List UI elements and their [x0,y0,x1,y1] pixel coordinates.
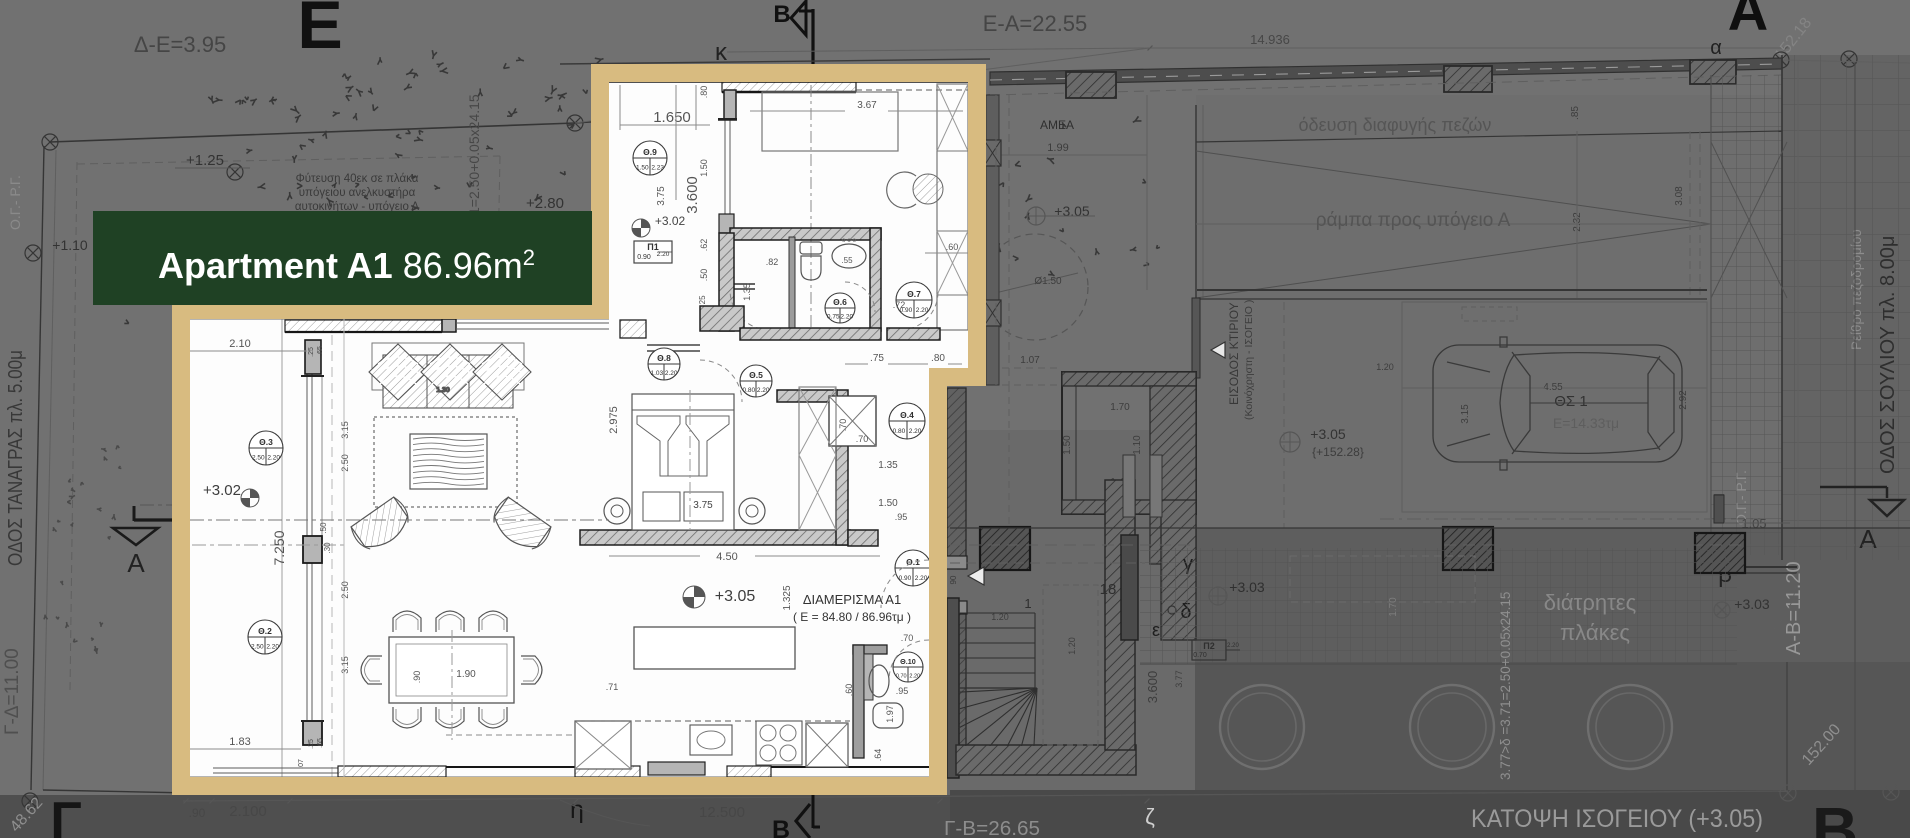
svg-text:90: 90 [949,575,958,584]
svg-text:2.20: 2.20 [267,454,280,461]
svg-text:.07: .07 [298,759,305,769]
svg-text:2.50: 2.50 [340,581,350,599]
svg-text:1.50: 1.50 [636,164,649,171]
svg-text:.60: .60 [844,684,854,697]
svg-text:2.23: 2.23 [651,164,664,171]
svg-text:1.50: 1.50 [1062,435,1073,455]
svg-text:Π2: Π2 [1203,641,1215,651]
svg-text:Δ-Ε=3.95: Δ-Ε=3.95 [134,32,226,57]
svg-text:ΔΙΑΜΕΡΙΣΜΑ Α1: ΔΙΑΜΕΡΙΣΜΑ Α1 [803,592,901,607]
svg-text:3.600: 3.600 [1145,671,1160,704]
svg-text:ΚΑΤΟΨΗ ΙΣΟΓΕΙΟΥ (+3.05): ΚΑΤΟΨΗ ΙΣΟΓΕΙΟΥ (+3.05) [1471,805,1763,833]
svg-text:.71: .71 [606,682,619,692]
svg-text:2.20: 2.20 [915,575,928,582]
svg-text:2.20: 2.20 [909,428,922,435]
svg-text:α: α [1710,37,1722,59]
svg-text:7.250: 7.250 [271,530,287,565]
svg-text:1.70: 1.70 [1110,402,1130,413]
svg-text:Ο.Γ.- Ρ.Γ.: Ο.Γ.- Ρ.Γ. [7,175,23,230]
svg-text:ΟΔΟΣ ΤΑΝΑΓΡΑΣ πλ. 5.00μ: ΟΔΟΣ ΤΑΝΑΓΡΑΣ πλ. 5.00μ [5,350,27,566]
svg-text:Ε-Α=22.55: Ε-Α=22.55 [983,11,1088,36]
svg-text:+3.02: +3.02 [203,482,241,499]
svg-text:1.35: 1.35 [878,460,898,471]
svg-text:1.97: 1.97 [885,705,895,723]
svg-text:18: 18 [1100,581,1117,598]
svg-text:.64: .64 [873,749,883,762]
svg-text:1.90: 1.90 [456,669,476,680]
svg-text:1.07: 1.07 [1020,355,1040,366]
svg-text:1: 1 [1024,596,1031,611]
svg-text:3.77>δ =3.71=2.50+0.05x24.15: 3.77>δ =3.71=2.50+0.05x24.15 [1498,592,1513,780]
svg-text:2.100: 2.100 [229,803,267,820]
svg-text:Θ.10: Θ.10 [900,657,916,666]
svg-text:+3.05: +3.05 [1310,426,1346,442]
svg-text:1.50: 1.50 [699,159,709,177]
svg-text:+3.02: +3.02 [655,214,686,228]
svg-text:o-o-o: o-o-o [842,238,857,244]
svg-text:Β: Β [773,1,790,28]
svg-text:.25: .25 [308,739,315,749]
svg-text:.65: .65 [317,738,324,748]
svg-text:Ε=14.33τμ: Ε=14.33τμ [1553,415,1619,431]
svg-text:.95: .95 [895,512,908,522]
svg-text:3.75: 3.75 [656,186,667,206]
svg-text:.75: .75 [870,353,884,364]
svg-text:2.20: 2.20 [665,370,678,377]
svg-text:0.80: 0.80 [742,387,755,394]
svg-text:12.500: 12.500 [699,804,745,821]
svg-text:.60: .60 [946,242,959,252]
svg-text:Θ.4: Θ.4 [900,410,914,420]
svg-text:ΑΜΕΑ: ΑΜΕΑ [1040,118,1074,132]
svg-text:1.20: 1.20 [1067,637,1077,655]
svg-text:Θ.3: Θ.3 [259,437,273,447]
svg-text:ζ: ζ [1145,804,1155,829]
svg-text:πλάκες: πλάκες [1560,620,1630,645]
svg-text:0.70: 0.70 [896,673,907,679]
svg-text:1.35: 1.35 [742,283,752,301]
svg-text:2.20: 2.20 [840,313,853,320]
svg-text:.55: .55 [841,256,853,265]
svg-text:+2.80: +2.80 [526,195,564,212]
svg-text:0.70: 0.70 [1193,652,1207,659]
svg-text:Γ: Γ [50,792,81,838]
svg-text:.70: .70 [856,434,869,444]
svg-text:0.75: 0.75 [827,313,840,320]
svg-text:2.20: 2.20 [757,387,770,394]
svg-text:Φύτευση 40εκ σε πλάκα: Φύτευση 40εκ σε πλάκα [296,173,419,185]
svg-text:3.77: 3.77 [1174,670,1184,688]
svg-text:.85: .85 [1570,106,1581,120]
svg-text:E: E [297,0,342,63]
svg-text:A: A [1728,0,1768,42]
svg-text:Θ.9: Θ.9 [643,147,657,157]
svg-text:Α-Β=11.20: Α-Β=11.20 [1783,561,1805,655]
svg-text:Γ-Δ=11.00: Γ-Δ=11.00 [2,648,23,735]
svg-text:3.15: 3.15 [1460,404,1471,424]
svg-text:1.20: 1.20 [1376,362,1394,372]
svg-text:4.55: 4.55 [1543,382,1563,393]
svg-text:3.75: 3.75 [693,500,713,511]
svg-text:( Ε = 84.80 / 86.96τμ ): ( Ε = 84.80 / 86.96τμ ) [793,610,911,624]
svg-text:+3.05: +3.05 [1054,203,1090,219]
svg-text:υπόγειου ανελκυστήρα: υπόγειου ανελκυστήρα [299,187,416,199]
svg-text:2.20: 2.20 [909,673,920,679]
svg-text:3.08: 3.08 [1674,186,1685,206]
svg-text:.25: .25 [308,347,315,357]
svg-text:2.20: 2.20 [266,643,279,650]
svg-text:A: A [127,548,145,578]
svg-text:Γ-Β=26.65: Γ-Β=26.65 [944,818,1040,838]
svg-text:{+152.28}: {+152.28} [1312,445,1364,459]
svg-text:ΟΔΟΣ ΣΟΥΛΙΟΥ πλ. 8.00μ: ΟΔΟΣ ΣΟΥΛΙΟΥ πλ. 8.00μ [1877,236,1899,474]
svg-text:1.50: 1.50 [878,498,898,509]
svg-text:.65: .65 [317,346,324,356]
svg-text:.50: .50 [699,269,709,282]
svg-text:.80: .80 [931,353,945,364]
svg-text:1.70: 1.70 [1388,597,1399,617]
svg-text:+1.10: +1.10 [52,237,88,253]
svg-text:2.10: 2.10 [229,338,250,350]
svg-text:η: η [570,796,584,824]
svg-text:1.20: 1.20 [991,612,1009,622]
svg-text:(Κοινόχρηστη - ΙΣΟΓΕΙΟ ): (Κοινόχρηστη - ΙΣΟΓΕΙΟ ) [1243,300,1255,420]
svg-text:3.67: 3.67 [857,100,877,111]
svg-text:Θ.2: Θ.2 [258,626,272,636]
svg-text:Θ.8: Θ.8 [657,353,671,363]
svg-text:0.90: 0.90 [899,575,912,582]
svg-text:1.325: 1.325 [782,585,793,610]
svg-text:3.15: 3.15 [340,421,350,439]
svg-text:0.90: 0.90 [637,254,651,261]
svg-text:+1.25: +1.25 [186,152,224,169]
svg-text:.50: .50 [319,522,328,534]
svg-text:Θ.7: Θ.7 [907,289,921,299]
svg-text:1.03: 1.03 [650,370,663,377]
svg-text:0.80: 0.80 [893,428,906,435]
svg-text:.72: .72 [893,300,906,310]
svg-text:.62: .62 [699,239,709,252]
svg-text:.90: .90 [412,671,422,684]
svg-text:1.83: 1.83 [229,736,250,748]
svg-text:.70: .70 [901,633,914,643]
svg-text:1.99: 1.99 [1047,142,1068,154]
svg-text:.95: .95 [896,686,909,696]
svg-text:2.50: 2.50 [252,454,265,461]
svg-text:Β: Β [772,816,790,838]
svg-text:1.650: 1.650 [653,109,691,126]
svg-text:Ρείθρο πεζοδρομίου: Ρείθρο πεζοδρομίου [1849,229,1864,350]
svg-text:B: B [1812,794,1858,838]
svg-text:Θ.5: Θ.5 [749,370,763,380]
svg-text:ΘΣ 1: ΘΣ 1 [1554,393,1587,410]
svg-text:2.92: 2.92 [1678,390,1689,410]
svg-text:2.50: 2.50 [340,454,350,472]
svg-text:Θ.6: Θ.6 [833,297,847,307]
svg-text:1.10: 1.10 [1132,435,1143,455]
svg-text:Ø1.50: Ø1.50 [1034,276,1062,287]
svg-text:ράμπα προς υπόγειο Α: ράμπα προς υπόγειο Α [1316,210,1511,231]
svg-text:ΕΙΣΟΔΟΣ ΚΤΙΡΙΟΥ: ΕΙΣΟΔΟΣ ΚΤΙΡΙΟΥ [1227,302,1241,405]
svg-text:.30: .30 [323,542,332,554]
svg-text:.25: .25 [698,295,707,307]
svg-text:+3.03: +3.03 [1229,579,1265,595]
svg-text:2.975: 2.975 [608,406,620,434]
svg-text:Θ.1: Θ.1 [906,557,920,567]
svg-text:1=2.50+0.05x24.15: 1=2.50+0.05x24.15 [466,94,482,215]
svg-text:+3.03: +3.03 [1734,596,1770,612]
svg-text:.70: .70 [838,419,848,432]
svg-text:.90: .90 [189,806,206,820]
svg-text:.80: .80 [699,86,709,99]
svg-text:2.20: 2.20 [916,307,929,314]
svg-text:1.30: 1.30 [436,387,450,394]
svg-text:2.20: 2.20 [1227,643,1239,649]
svg-text:2.50: 2.50 [251,643,264,650]
svg-text:3.600: 3.600 [684,176,701,214]
svg-text:3.15: 3.15 [340,656,350,674]
svg-text:.82: .82 [766,257,779,267]
svg-text:14.936: 14.936 [1250,32,1290,47]
svg-text:διάτρητες: διάτρητες [1544,590,1636,615]
svg-text:Apartment A1 86.96m2: Apartment A1 86.96m2 [158,245,535,286]
svg-text:+3.05: +3.05 [715,588,756,605]
svg-text:όδευση διαφυγής πεζών: όδευση διαφυγής πεζών [1299,115,1492,135]
svg-text:4.50: 4.50 [716,551,737,563]
